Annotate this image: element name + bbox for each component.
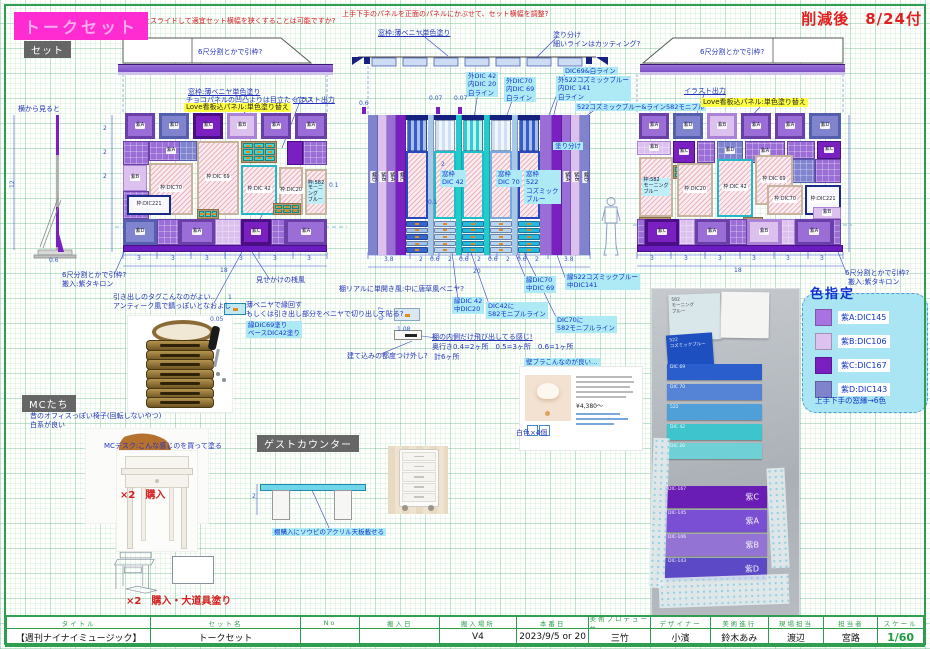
annotation-note: 搬入:紫タキロン [848,278,899,287]
drawer-cluster [197,209,219,219]
dimension-label: 3 [205,256,209,262]
drawer-row [490,247,512,253]
annotation-note: 塗り分け 細いラインはカッティング? [553,31,640,49]
panel-label: 枠:DIC70 [159,186,183,192]
legend-items: 紫A:DIC145紫B:DIC106紫C:DIC167紫D:DIC143 [803,294,927,398]
panel-label: 紫A [760,149,770,155]
table-value-cell [360,629,440,645]
color-stripe: 紫B [378,115,387,255]
panel-label: 紫A [707,229,717,235]
annotation-note: 棚リアルに単開き風:中に唐草風ベニヤ? [339,285,464,294]
window-drawers [434,221,456,253]
table-header-cell: セット名 [151,617,300,629]
drawer-handle [277,206,281,208]
drawer-row [518,247,540,253]
slot-mark [405,334,417,337]
drawer-handle [443,236,447,238]
right-wall-elevation: 紫A紫D紫B紫A紫A紫D紫B紫C紫D紫A紫C枠:582 モーニング ブルー枠:D… [637,113,843,252]
drawer-handle [499,243,503,245]
table-header-cell: 美術進行 [711,617,769,629]
drawer-row [518,228,540,234]
drawer-row [518,234,540,240]
annotation-note: 奥行き0.4=2ヶ所 0.5=3ヶ所 0.6=1ヶ所 [432,343,573,352]
drawer-cell [265,149,275,154]
drawer-cell [205,211,210,217]
dimension-label: 0.6 [359,101,369,107]
drawer-handle [415,236,419,238]
annotation-note: 窓枠:薄ベニヤ単色塗り [378,29,450,38]
pull-slot [160,373,200,376]
legend-note: 上手下手の窓縁→6色 [815,395,886,406]
dimension-label: 2 [103,174,107,180]
wall-panel: 紫B [707,113,737,139]
drawer-handle [415,229,419,231]
annotation-note: イラスト出力 [684,87,726,96]
annotation-note: 棚購入にソウビのアクリル天板載せる [272,528,386,536]
drawer-handle [257,145,261,147]
drawer-row [490,234,512,240]
page-title: トークセット [14,12,148,40]
cart-frame [399,449,439,507]
window-slats [519,120,539,151]
drawer-row [462,234,484,240]
section-label-guest: ゲストカウンター [257,435,359,452]
cart-drawer [402,462,436,471]
drawer-cell [265,143,275,148]
wall-panel: 紫A [261,113,291,139]
drawer-handle [246,157,250,159]
table-value-cell [301,629,361,645]
wall-panel: 紫D [159,113,189,139]
table-value-cell: トークセット [151,629,300,645]
drawer-handle [246,145,250,147]
annotation-note: 6尺分割とかで引枠? [700,48,764,57]
drawer-handle [443,229,447,231]
drawer-handle [212,213,216,215]
cart-drawer [402,472,436,481]
wall-panel: 紫A [795,219,833,245]
wall-panel: 枠:DIC 69 [197,141,239,215]
drawer-handle [415,249,419,251]
drawer-handle [415,223,419,225]
screwdriver-shaft [213,349,220,367]
drawer-row [434,228,456,234]
dimension-label: 3 [752,256,756,262]
annotation-note: 窓枠 DIC 70 [496,170,522,187]
legend-label: 紫A:DIC145 [838,311,889,324]
wall-lamp-product-card: ¥4,380〜 [519,366,643,451]
drawer-row [490,221,512,227]
wall-panel: 紫A [775,113,805,139]
panel-label: 枠:DIC70 [773,197,797,203]
wall-panel: 紫C [817,141,841,159]
annotation-note: 棚の内側だけ飛び出してる感じ! [432,333,533,342]
window-pane [406,151,428,219]
panel-label: 紫C [251,229,262,235]
counter-leg [272,490,290,520]
product-price: ¥4,380〜 [576,401,636,410]
wall-panel: 紫D [717,141,743,161]
drawer-row [462,247,484,253]
drawer-handle [268,151,272,153]
drawer-handle [415,243,419,245]
desk-knob [155,479,159,483]
left-header-band-trim [118,72,333,75]
window-drawers [462,221,484,253]
drawer-row [406,234,428,240]
cart-drawer-handle [414,456,424,458]
drawer-cell [265,156,275,161]
window-drawers [518,221,540,253]
cart-drawer-handle [414,496,424,498]
drawer-handle [443,243,447,245]
drawer-handle [527,223,531,225]
color-stripe: 紫A [387,115,396,255]
stripe-label: 紫A [388,171,394,182]
drawer-row [406,221,428,227]
dimension-label: 3 [137,256,141,262]
dimension-label: 3.8 [384,257,394,263]
table-header-cell: 搬入日 [360,617,440,629]
drawer-handle [527,249,531,251]
dimension-label: 2 [103,126,107,132]
dimension-label: 2 [419,257,423,263]
wall-panel: 紫D [673,113,703,139]
dimension-label: 0.1 [428,200,438,206]
dimension-label: 2 [535,257,539,263]
window-unit [406,115,428,255]
cart-drawer [402,493,436,502]
window-slats [491,120,511,151]
strip-name: 紫D [745,564,759,575]
panel-label: 紫B [759,229,769,235]
dimension-label: 2 [252,494,256,500]
blue-color-strip: DIC 70 [667,384,762,400]
wall-panel [215,219,241,245]
annotation-note: 外DIC70 内DIC 69 白ライン [504,77,536,102]
wall-panel: 枠:DIC70 [767,185,803,215]
panel-label: 紫A [785,123,795,129]
panel-label: 紫D [683,123,694,129]
wall-panel [781,219,795,245]
strip-name: 紫B [746,540,760,551]
screw-icon [216,372,220,376]
panel-label: 紫C [679,149,690,155]
drawer-cell [254,156,264,161]
drawer-row [434,241,456,247]
drawer-handle [443,223,447,225]
pull-slot [160,344,200,347]
drawer-handle [285,206,289,208]
annotation-note: MCデスク:こんな感じのを買って塗る [104,442,222,451]
annotation-note: DIC70に 582モニプルライン [555,316,617,333]
panel-label: 紫A [166,148,176,154]
tag-handle-mark [233,308,238,311]
drawer-handle [499,249,503,251]
drawer-row [490,241,512,247]
wall-panel: 紫B [227,113,257,139]
right-header-band-trim [640,72,845,75]
dimension-label: 18 [220,268,228,274]
shelf-handle-mark [405,314,410,317]
table-header-cell: タイトル [7,617,151,629]
panel-label: 紫B [130,175,140,181]
pull-slot [160,392,200,395]
wall-panel: 紫C [673,141,695,163]
wall-panel: 紫C [241,219,271,245]
wall-panel: 紫A [179,219,215,245]
table-header-cell: 担当者 [824,617,878,629]
desk-leg [169,487,174,541]
wall-panel [833,219,841,245]
strip-label: 522 [670,406,679,411]
annotation-note: 搬入:紫タキロン [62,280,113,289]
drawer-handle [471,236,475,238]
color-legend: 紫A:DIC145紫B:DIC106紫C:DIC167紫D:DIC143 上手下… [802,293,928,413]
wall-panel [157,219,179,245]
dimension-label: 2 [441,162,445,168]
wall-panel: 紫A [125,113,155,139]
panel-label: 枠:582 モーニング ブルー [307,181,325,204]
wall-panel [287,141,303,165]
drawer-row [434,247,456,253]
panel-label: 紫B [717,123,727,129]
drawer-handle [285,210,289,212]
panel-label: 枠:DIC 69 [205,175,230,181]
lamp-shade [537,383,559,399]
annotation-note: ×2 購入・大道具塗り [126,595,231,608]
drawer-handle [471,249,475,251]
dimension-label: 3 [684,256,688,262]
counter-leg [334,490,352,520]
wall-panel [123,141,149,165]
cart-drawer [402,452,436,461]
annotation-note: 上手下手をスライドして適宜セット横幅を狭くすることは可能ですか? [115,17,336,26]
table-value-cell: 小濱 [651,629,711,645]
wall-panel [637,219,645,245]
guest-counter-sketch [260,482,364,520]
dimension-label: 1.08 [397,327,410,333]
lamp-glow [545,411,550,416]
annotation-note: 壁ブラこんなのが良い… [524,358,600,366]
dimension-label: 3 [239,256,243,262]
wall-panel: 紫C [193,113,223,139]
revision-note: 削減後 8/24付 [801,8,922,29]
stripe-label: 紫D [370,171,376,183]
drawer-cell [292,210,299,214]
cart-drawer-handle [414,476,424,478]
window-slats [407,120,427,151]
panel-label: 紫A [809,229,819,235]
annotation-note: 6尺分割とかで引枠? [845,269,909,278]
dimension-label: 20 [473,269,481,275]
panel-label: 紫A [192,229,202,235]
drawer-handle [246,151,250,153]
strip-label: DIC-145 [668,512,686,517]
panel-label: 紫C [203,123,214,129]
color-stripe: 紫B [571,115,580,255]
panel-label: 紫A [751,123,761,129]
lamp-photo [525,375,571,421]
panel-label: 枠:DIC 42 [246,187,271,193]
strip-label: DIC-167 [668,488,686,493]
pull-slot [160,354,200,357]
color-stripe: 紫D [368,115,378,255]
drawer-cart-photo [388,446,448,514]
drawer-row [462,241,484,247]
drawer-cluster [273,203,301,215]
wall-panel: 紫A [741,113,771,139]
table-header-cell: 搬入場所 [440,617,517,629]
drawer-cell [283,205,290,209]
product-text: ¥4,380〜 [576,373,636,428]
drawer-handle [443,249,447,251]
dimension-label: 0.1 [329,183,339,189]
panel-label: 枠:DIC 42 [722,185,747,191]
wall-panel: 紫A [295,113,327,139]
color-stripe: 紫D [580,115,590,255]
window-drawers [490,221,512,253]
dimension-label: 0.07 [379,307,385,320]
annotation-note: Love看板込パネル:単色塗り替え [701,98,808,107]
drawer-row [406,241,428,247]
drawer-handle [277,210,281,212]
wall-panel [815,159,841,183]
stripe-label: 紫A [563,171,569,182]
screw-icon [222,378,226,382]
drawer-row [406,247,428,253]
center-post-mark [458,107,462,114]
panel-label: 紫B [649,145,659,151]
dimension-label: 3 [650,256,654,262]
pull-handle [146,397,214,408]
table-value-cell: 三竹 [589,629,651,645]
pull-slot [160,382,200,385]
stripe-label: 紫B [379,171,385,182]
panel-label: 紫B [237,123,247,129]
wall-panel: 紫B [813,207,841,219]
center-post-mark [362,107,366,114]
stripe-label: 紫B [572,171,578,182]
dimension-label: 2 [103,150,107,156]
panel-label: 枠:DIC20 [279,188,303,194]
annotation-note: 外DIC 42 内DIC 20 白ライン [466,72,498,97]
desk-drawer [125,474,189,488]
strip-label: DIC-106 [668,536,686,541]
panel-label: 枠:DIC 69 [761,177,786,183]
annotation-note: 白色×4個 [516,429,547,438]
drawer-handle [268,157,272,159]
drawer-handle [527,243,531,245]
legend-swatch [815,333,832,350]
blue-color-strip: DIC 42 [667,424,762,440]
annotation-note: 昔のオフィスっぽい椅子(回転しないやつ) 白系が良い [30,412,161,430]
annotation-note: 縁DIC 42 中DIC20 [452,297,484,314]
drawer-handle [200,213,204,215]
wall-panel: 紫D [809,113,841,139]
panel-label: 枠:582 モーニング ブルー [642,178,669,195]
strip-label: DIC 70 [670,386,685,391]
panel-label: 紫C [824,147,835,153]
legend-label: 紫C:DIC167 [838,359,890,372]
blue-color-strip: 522 [667,404,762,420]
annotation-note: 外522コズミックブルー 内DIC 141 白ライン [556,76,631,101]
dimension-label: 0.6 [517,257,527,263]
drawer-cell [243,156,253,161]
drawer-cell [212,211,217,217]
dimension-label: 0.6 [488,257,498,263]
drawer-handle [499,223,503,225]
drawer-handle [293,206,297,208]
paint-chip: 522 コズミックブルー [666,332,714,367]
drawer-row [462,221,484,227]
annotation-note: 窓枠 DIC 42 [440,170,466,187]
strip-label: DIC 42 [670,426,685,431]
dimension-label: 2 [506,257,510,263]
left-wall-elevation: 紫A紫D紫C紫B紫A紫A紫A紫B枠:DIC70枠:DIC 69枠:DIC 42枠… [123,113,327,252]
drawer-row [434,221,456,227]
annotation-note: 窓枠 522 コズミック ブルー [524,170,561,204]
annotation-note: 6尺分割とかで引枠? [62,271,126,280]
blue-color-strip: DIC 20 [667,443,762,459]
strip-name: 紫A [746,516,759,527]
wall-panel: 紫A [285,219,327,245]
wall-panel: 枠:582 モーニング ブルー [305,169,327,215]
panel-label: 紫D [725,148,736,154]
color-stripe: 紫A [562,115,571,255]
paint-chip [721,292,770,339]
dimension-label: 3 [718,256,722,262]
drawer-handle [206,213,210,215]
cart-wheel [428,505,434,511]
panel-label: 紫A [271,123,281,129]
drawer-handle [471,229,475,231]
annotation-note: 上手下手のパネルを正面のパネルにかぶせて、セット横幅を調整? [342,10,548,19]
wall-panel: 枠:DIC20 [677,163,713,217]
panel-label: 紫D [169,123,180,129]
drawer-cell [275,205,282,209]
strip-label: DIC 20 [670,445,685,450]
desk-sketch [100,548,170,596]
dimension-label: 18 [734,268,742,274]
dimension-label: 2 [448,257,452,263]
dimension-label: 3 [820,256,824,262]
color-stripe: 紫C [396,115,406,255]
side-view-flat [34,115,76,258]
table-header-cell: スケール [878,617,923,629]
cart-wheel [402,505,408,511]
legend-item: 紫A:DIC145 [815,309,927,326]
panel-label: 紫A [306,123,316,129]
drawer-row [434,234,456,240]
drawer-handle [293,210,297,212]
panel-label: 枠:DIC221 [809,197,836,203]
annotation-note: 縁DIC70 中DIC 69 [524,276,556,293]
drawer-cell [243,143,253,148]
table-header-cell: 美術プロデューサー [589,617,651,629]
wall-panel [729,219,747,245]
annotation-note: 6尺分割とかで引枠? [198,48,262,57]
drawer-cell [254,143,264,148]
annotation-note: 見せかけの桟風 [256,276,305,285]
legend-swatch [815,309,832,326]
table-header-cell: 現場担当 [769,617,825,629]
panel-label: 紫B [822,210,832,216]
annotation-note: 計6ヶ所 [434,353,459,362]
window-drawers [406,221,428,253]
drawer-row [406,228,428,234]
annotation-note: 建て込みの都度つけ外し? [347,352,428,361]
